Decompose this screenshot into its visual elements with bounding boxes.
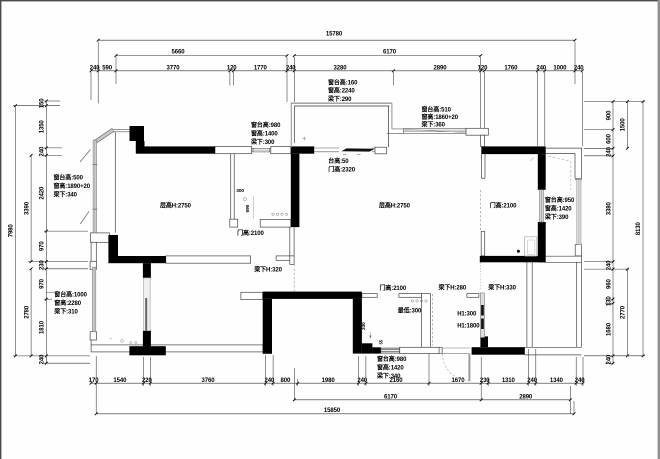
svg-text:240: 240	[357, 378, 367, 384]
svg-text:1810: 1810	[40, 320, 46, 334]
svg-text:H1:300: H1:300	[457, 312, 477, 318]
svg-text:970: 970	[40, 278, 46, 288]
svg-text:6170: 6170	[383, 50, 397, 56]
svg-text:1670: 1670	[452, 378, 466, 384]
svg-text:梁下H:280: 梁下H:280	[439, 283, 467, 291]
svg-text:970: 970	[40, 241, 46, 251]
svg-text:门高:2320: 门高:2320	[328, 165, 355, 173]
svg-text:梁下H:330: 梁下H:330	[488, 283, 516, 291]
svg-text:1000: 1000	[553, 66, 567, 72]
svg-text:170: 170	[89, 378, 99, 384]
svg-text:3760: 3760	[202, 378, 216, 384]
svg-text:2770: 2770	[621, 305, 627, 319]
svg-text:梁下:300: 梁下:300	[251, 138, 275, 146]
svg-text:梁下:290: 梁下:290	[328, 95, 352, 103]
svg-text:120: 120	[478, 66, 488, 72]
svg-text:1980: 1980	[322, 378, 336, 384]
svg-text:800: 800	[281, 378, 291, 384]
svg-text:最低:300: 最低:300	[398, 306, 422, 314]
svg-text:240: 240	[90, 66, 100, 72]
svg-text:6170: 6170	[384, 395, 398, 401]
svg-text:1340: 1340	[550, 378, 564, 384]
svg-text:2890: 2890	[519, 395, 533, 401]
svg-text:3280: 3280	[334, 66, 348, 72]
svg-text:240: 240	[574, 66, 584, 72]
svg-text:梁下:340: 梁下:340	[377, 372, 401, 380]
svg-text:2780: 2780	[24, 305, 30, 319]
svg-text:230: 230	[40, 260, 46, 270]
svg-text:窗高:2280: 窗高:2280	[54, 299, 81, 307]
svg-text:55: 55	[379, 339, 384, 344]
svg-text:150: 150	[40, 98, 46, 108]
svg-text:梁下H:320: 梁下H:320	[254, 265, 282, 273]
svg-text:2420: 2420	[40, 186, 46, 200]
svg-text:7980: 7980	[9, 224, 15, 238]
svg-text:900: 900	[607, 110, 613, 120]
svg-text:窗台高:500: 窗台高:500	[54, 174, 84, 182]
svg-text:窗高:1420: 窗高:1420	[545, 204, 572, 212]
svg-text:台高:50: 台高:50	[328, 157, 349, 165]
svg-text:窗台高:980: 窗台高:980	[377, 355, 407, 363]
svg-text:门高:2100: 门高:2100	[380, 284, 407, 292]
svg-text:1760: 1760	[504, 66, 518, 72]
svg-text:H1:1800: H1:1800	[457, 324, 480, 330]
svg-text:15850: 15850	[324, 408, 341, 414]
svg-text:15780: 15780	[326, 31, 343, 37]
svg-text:窗高:1890+20: 窗高:1890+20	[54, 182, 91, 190]
svg-text:5660: 5660	[172, 50, 186, 56]
svg-text:300: 300	[236, 188, 244, 194]
svg-text:窗台高:980: 窗台高:980	[251, 121, 281, 129]
svg-text:1310: 1310	[502, 378, 516, 384]
svg-text:1500: 1500	[621, 118, 627, 132]
svg-text:240: 240	[527, 378, 537, 384]
svg-text:1680: 1680	[607, 322, 613, 336]
svg-text:240: 240	[265, 378, 275, 384]
svg-text:130: 130	[607, 296, 613, 306]
svg-text:960: 960	[607, 278, 613, 288]
svg-text:3770: 3770	[167, 66, 181, 72]
svg-text:120: 120	[227, 66, 237, 72]
svg-text:窗高:2240: 窗高:2240	[328, 87, 355, 95]
svg-text:层高H:2750: 层高H:2750	[379, 202, 411, 210]
svg-text:门高:2100: 门高:2100	[490, 202, 517, 210]
svg-text:240: 240	[286, 66, 296, 72]
svg-text:梁下:310: 梁下:310	[54, 307, 78, 315]
svg-text:240: 240	[607, 146, 613, 156]
svg-text:窗高:1400: 窗高:1400	[251, 129, 278, 137]
svg-text:层高H:2750: 层高H:2750	[160, 202, 192, 210]
svg-text:1540: 1540	[113, 378, 127, 384]
svg-text:2890: 2890	[434, 66, 448, 72]
svg-text:1770: 1770	[254, 66, 268, 72]
svg-text:梁下:360: 梁下:360	[422, 121, 446, 129]
svg-text:梁下:340: 梁下:340	[54, 190, 78, 198]
svg-text:240: 240	[40, 354, 46, 364]
svg-text:梁下:390: 梁下:390	[545, 213, 569, 221]
svg-text:240: 240	[40, 146, 46, 156]
svg-text:窗高:1420: 窗高:1420	[377, 363, 404, 371]
svg-text:门高:2100: 门高:2100	[237, 229, 264, 237]
svg-text:330: 330	[361, 322, 367, 330]
svg-text:590: 590	[245, 204, 251, 212]
svg-text:3390: 3390	[24, 201, 30, 215]
svg-text:窗高:1860+20: 窗高:1860+20	[422, 113, 459, 121]
svg-text:窗台高:950: 窗台高:950	[545, 196, 575, 204]
svg-text:窗台高:1000: 窗台高:1000	[54, 291, 87, 299]
svg-text:590: 590	[102, 66, 112, 72]
svg-text:窗台高:160: 窗台高:160	[328, 79, 358, 87]
svg-text:600: 600	[607, 133, 613, 143]
svg-text:1350: 1350	[40, 120, 46, 134]
svg-text:8130: 8130	[636, 221, 642, 235]
svg-text:窗台高:510: 窗台高:510	[422, 105, 452, 113]
svg-text:240: 240	[536, 66, 546, 72]
svg-text:3380: 3380	[607, 201, 613, 215]
